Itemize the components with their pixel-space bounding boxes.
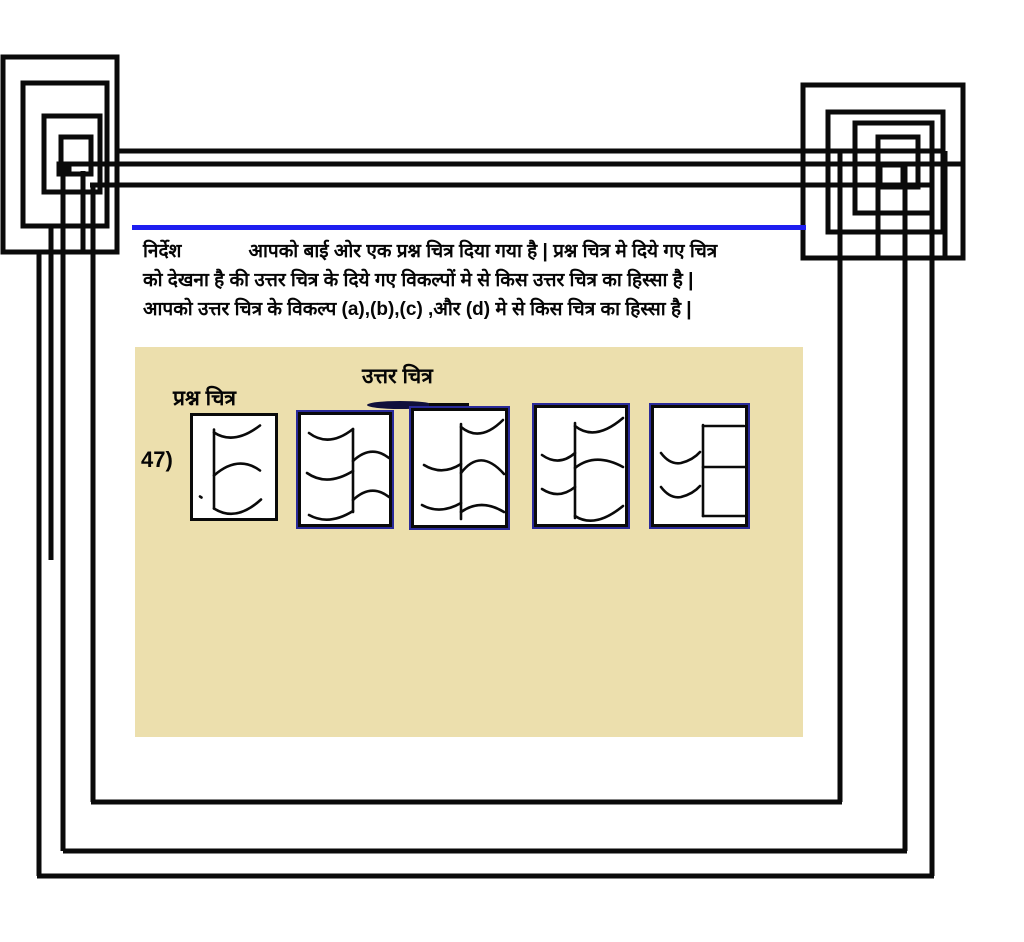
question-panel: प्रश्न चित्र उत्तर चित्र 47) (135, 347, 803, 737)
question-figure-label: प्रश्न चित्र (173, 384, 236, 412)
option-d-drawing (654, 408, 745, 524)
question-figure-drawing (193, 416, 275, 518)
instructions-label: निर्देश (143, 237, 181, 266)
instruction-line-3: आपको उत्तर चित्र के विकल्प (a),(b),(c) ,… (143, 295, 819, 324)
instruction-line-1: निर्देश आपको बाई ओर एक प्रश्न चित्र दिया… (143, 237, 819, 266)
instruction-line-1-text: आपको बाई ओर एक प्रश्न चित्र दिया गया है … (248, 237, 717, 266)
option-a-drawing (301, 415, 389, 524)
option-box-b[interactable] (411, 408, 508, 528)
blue-divider (132, 225, 806, 230)
instruction-line-2: को देखना है की उत्तर चित्र के दिये गए वि… (143, 266, 819, 295)
question-number: 47) (141, 447, 173, 473)
option-box-c[interactable] (534, 405, 628, 527)
underline-tail-decoration (429, 403, 469, 406)
option-b-drawing (414, 411, 505, 525)
worksheet-page: निर्देश आपको बाई ओर एक प्रश्न चित्र दिया… (0, 0, 1024, 942)
question-figure-box (190, 413, 278, 521)
option-box-d[interactable] (651, 405, 748, 527)
instructions: निर्देश आपको बाई ओर एक प्रश्न चित्र दिया… (143, 237, 819, 324)
answer-figure-label: उत्तर चित्र (362, 362, 433, 390)
option-c-drawing (537, 408, 625, 524)
option-box-a[interactable] (298, 412, 392, 527)
